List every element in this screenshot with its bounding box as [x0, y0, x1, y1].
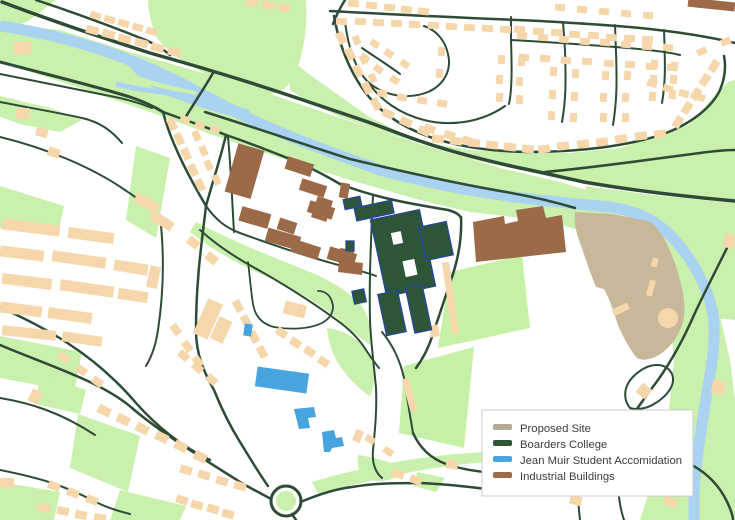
svg-text:Boarders College: Boarders College: [520, 439, 607, 451]
svg-text:Industrial Buildings: Industrial Buildings: [520, 471, 615, 483]
svg-text:Proposed Site: Proposed Site: [520, 423, 591, 435]
svg-text:Jean Muir Student Accomidation: Jean Muir Student Accomidation: [520, 455, 682, 467]
